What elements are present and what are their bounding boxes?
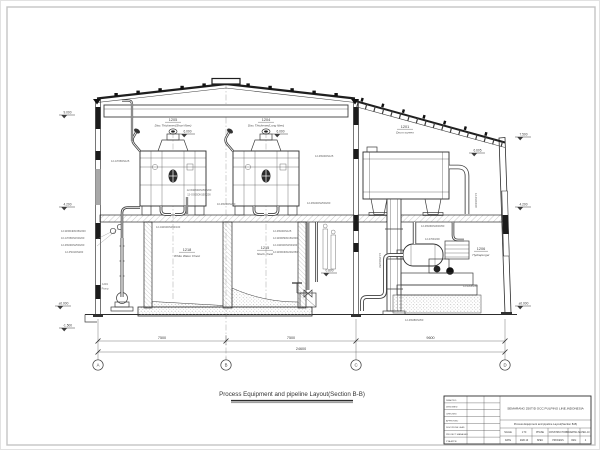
grid-bubble-a: A	[97, 363, 100, 368]
pipe-tag: 12-WW05DN150/200	[273, 236, 298, 240]
tb-row-discipline: DISCIPLINE LEAD	[446, 426, 465, 429]
drawing-page: 7500 7500 9600 24600 A B C D 1205 Disc T…	[0, 0, 600, 450]
purger-tag: 1206	[477, 247, 485, 251]
tb-date-value: 2020.10	[520, 440, 529, 442]
pipe-tag: Pump	[102, 287, 109, 291]
pipe-tag: 12-RS08DN350	[405, 318, 424, 322]
dim-c-d: 9600	[426, 336, 434, 340]
operating-floor	[100, 215, 502, 222]
pipe-tag: 10-GT05DN150/200	[61, 236, 85, 240]
chest-wall-right	[298, 222, 306, 308]
tb-phase-value: CONSTRUCTION	[549, 432, 568, 434]
tb-row-pm: PROJECT MANAGER	[446, 433, 468, 436]
tb-spec-value: PROCESS	[552, 440, 564, 442]
pipe-tag: 12-GS05DN150/200	[187, 193, 211, 197]
chest-wall-middle	[223, 222, 232, 308]
thickener1-name: Disc Thickener(Short fiber)	[155, 124, 192, 128]
elevation-text: 0.800	[326, 269, 334, 273]
cad-section-drawing: 7500 7500 9600 24600 A B C D 1205 Disc T…	[1, 1, 600, 451]
pipe-tag: 12-WW04DN350/200	[61, 229, 86, 233]
pipe-tag: 10-RS03DN200	[217, 202, 236, 206]
chest-wall-left	[144, 222, 152, 308]
dim-b-c: 7500	[287, 336, 295, 340]
tb-row-drafted: DRAFTED	[446, 399, 457, 402]
tb-row-approved: APPROVED	[446, 419, 459, 422]
elevation-text: ±0.000	[59, 302, 69, 306]
pipe-tag: 12-RS03DN250/200	[61, 243, 85, 247]
tb-phase-label: PHASE	[536, 431, 544, 434]
pipe-tag: 1219	[102, 282, 108, 286]
sheet-title: Process Equipment and pipeline Layout(Se…	[219, 391, 365, 398]
pipe-tag: 12-RS04DN125	[315, 154, 334, 158]
elevation-text: 7.500	[520, 133, 528, 137]
chest1-name: White Water Chest	[174, 254, 200, 258]
grid-bubble-c: C	[354, 363, 357, 368]
tb-scale-value: 1:70	[522, 432, 527, 434]
tb-row-pta: PTA APPR.	[446, 440, 457, 443]
pipe-tag: 12-PS01DN200	[65, 250, 84, 254]
elevation-text: ±0.000	[519, 302, 529, 306]
grid-bubble-b: B	[225, 363, 228, 368]
chest2-tag: 1215	[261, 246, 269, 250]
drum-name: Drum screen	[396, 131, 414, 135]
sheet-title-group: Process Equipment and pipeline Layout(Se…	[219, 391, 365, 403]
thickener2-name: Disc Thickener(Long fiber)	[248, 124, 284, 128]
tb-row-designed: DESIGNED	[446, 407, 458, 409]
thickener1-tag: 1205	[169, 118, 177, 122]
pipe-tag: 12-RS04DN125	[273, 229, 292, 233]
tb-row-checked: CHECKED	[446, 414, 457, 416]
tb-dwgno-label: DRAWING No.	[566, 431, 582, 434]
pipe-tag: 12-05DN250	[378, 253, 382, 268]
tb-rev-label: REV.	[571, 440, 577, 442]
tb-dwgno-value: PEC-10	[581, 432, 590, 434]
thickener2-tag: 1204	[262, 118, 270, 122]
dim-a-b: 7500	[158, 336, 166, 340]
elevation-text: 6.000	[277, 130, 285, 134]
pipe-tag: 12-RS04DN250/200	[307, 201, 331, 205]
chest2-name: Stock chest	[257, 252, 273, 256]
pipe-tag: 12-GT05DN125	[111, 159, 130, 163]
elevation-text: 6.605	[474, 149, 482, 153]
elevation-text: 4.200	[520, 203, 528, 207]
tb-project: SEMARANG 250T/D OCC PULPING LINE,INDONES…	[507, 407, 584, 411]
pipe-tag: 12-01DN600	[474, 193, 478, 208]
pipe-tag: 12-GW04DN150/100	[156, 225, 181, 229]
title-block: DRAFTED DESIGNED CHECKED APPROVED DISCIP…	[444, 396, 591, 444]
dim-overall: 24600	[296, 347, 306, 351]
pipe-tag: 12-07DN200	[425, 237, 440, 241]
tb-spec-label: SPEC	[537, 440, 544, 442]
pipe-tag: 12-02DN250	[463, 284, 478, 288]
drum-tag: 1201	[401, 125, 409, 129]
pipe-tag: 12-RS06DN300/350	[421, 224, 445, 228]
grid-bubble-d: D	[503, 363, 506, 368]
pipe-tag: 12-WW03DN200/250	[273, 250, 298, 254]
chest1-tag: 1218	[183, 248, 191, 252]
pipe-tag: 12-WW04DN350/200	[187, 188, 212, 192]
elevation-text: 4.200	[64, 203, 72, 207]
elevation-text: -1.500	[63, 324, 72, 328]
crane-beam	[104, 105, 348, 117]
tb-date-label: DATE	[505, 439, 511, 442]
purger-name: Hydrapurger	[472, 253, 490, 257]
chest-base-slab	[138, 307, 312, 316]
tb-scale-label: SCALE	[504, 431, 512, 434]
tb-drawing-title: Process Equipment and pipeline Layout(Se…	[514, 422, 577, 426]
elevation-text: 6.000	[184, 130, 192, 134]
pipe-tag: 12-GW02DN150/200	[273, 243, 298, 247]
elevation-text: 9.000	[64, 111, 72, 115]
